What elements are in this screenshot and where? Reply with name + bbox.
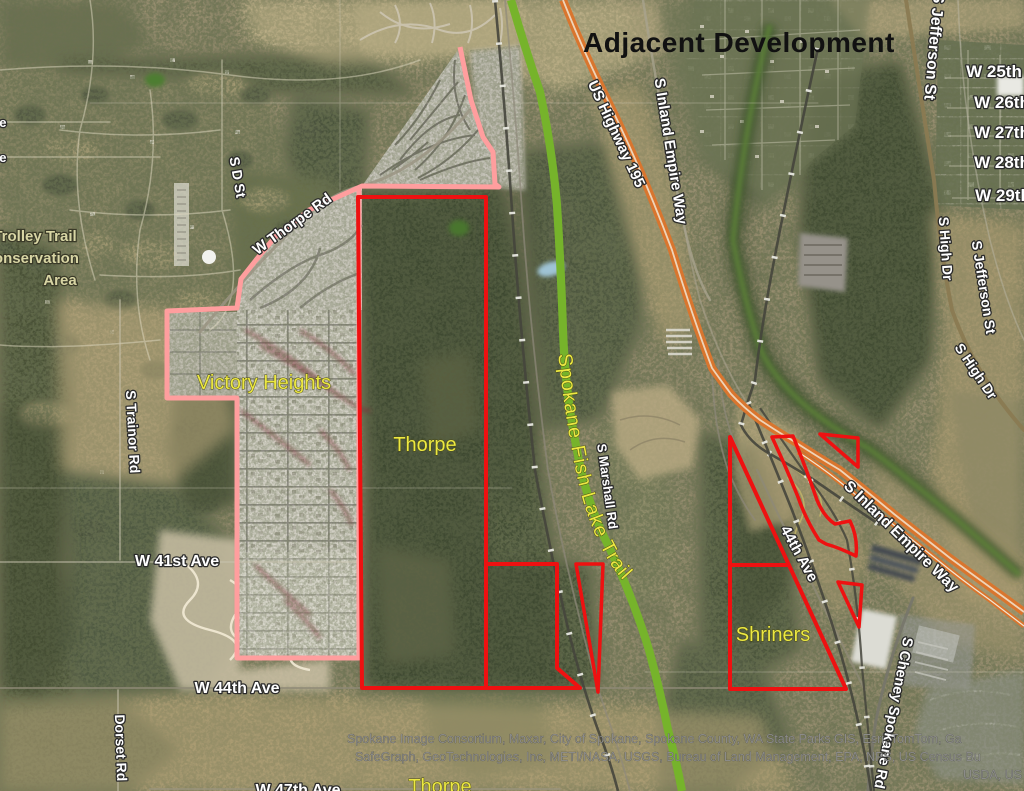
svg-text:W 29th: W 29th <box>975 186 1024 205</box>
svg-text:W 41st Ave: W 41st Ave <box>135 553 219 570</box>
svg-text:USDA, US: USDA, US <box>963 768 1022 782</box>
svg-text:W 26th: W 26th <box>974 93 1024 112</box>
svg-text:Conservation: Conservation <box>0 250 79 267</box>
svg-text:SafeGraph, GeoTechnologies, In: SafeGraph, GeoTechnologies, Inc, METI/NA… <box>355 750 981 764</box>
svg-text:Spokane Image Consortium, Maxa: Spokane Image Consortium, Maxar, City of… <box>347 732 962 746</box>
svg-text:W 44th Ave: W 44th Ave <box>194 680 279 697</box>
svg-text:Thorpe: Thorpe <box>408 776 471 791</box>
svg-text:W 47th Ave: W 47th Ave <box>255 782 340 791</box>
svg-text:W 27th: W 27th <box>974 123 1024 142</box>
svg-text:W 25th: W 25th <box>966 62 1022 81</box>
svg-text:W 28th: W 28th <box>974 153 1024 172</box>
svg-text:Adjacent Development: Adjacent Development <box>583 27 895 58</box>
svg-text:ve: ve <box>0 115 6 130</box>
svg-text:Area: Area <box>43 272 77 289</box>
svg-text:Trolley Trail: Trolley Trail <box>0 228 77 245</box>
svg-text:ve: ve <box>0 150 6 165</box>
svg-text:Shriners: Shriners <box>736 624 810 646</box>
svg-text:Victory Heights: Victory Heights <box>197 372 331 394</box>
svg-text:Thorpe: Thorpe <box>393 434 456 456</box>
svg-text:Dorset Rd: Dorset Rd <box>112 714 130 781</box>
